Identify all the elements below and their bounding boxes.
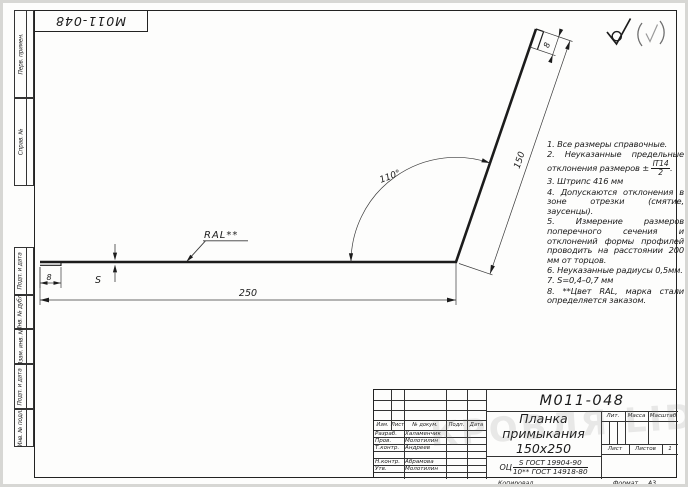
dim-8top-text: 8 [542, 41, 552, 49]
dim-s-text: S [95, 275, 101, 286]
dim-angle-text: 110° [378, 169, 402, 186]
sign-name: Молотилин [405, 465, 446, 472]
gost-drawing-sheet: Перв. примен. Справ. № Подп. и дата Инв.… [0, 0, 688, 487]
sign-role: Н.контр. [375, 458, 404, 465]
note-2: 2. Неуказанные предельные отклонения раз… [547, 150, 684, 177]
arrow [113, 253, 117, 261]
technical-notes: 1. Все размеры справочные. 2. Неуказанны… [547, 140, 684, 306]
ral-leader-line [189, 241, 249, 260]
listov-label: Листов [629, 444, 662, 454]
doc-number: М011-048 [486, 390, 678, 411]
arrow [40, 298, 49, 303]
listov-value: 1 [662, 444, 678, 454]
dim-8left-text: 8 [46, 273, 51, 282]
sign-role: Т.контр. [375, 444, 404, 451]
col-header-list: Лист [391, 420, 404, 430]
note-4: 4. Допускаются отклонения в зоне отрезки… [547, 188, 684, 217]
lit-header: Лит. [601, 411, 625, 421]
list-label: Лист [601, 444, 629, 454]
arrow [349, 253, 353, 261]
profile-outline [40, 29, 536, 262]
massa-header: Масса [625, 411, 648, 421]
note-8: 8. **Цвет RAL, марка стали определяется … [547, 287, 684, 306]
sign-name: Абрамова [405, 458, 446, 465]
arrow [481, 158, 490, 163]
sign-name: Молотилин [405, 437, 446, 444]
sign-role: Разраб. [375, 430, 404, 437]
kopiroval-label: Копировал [498, 480, 533, 487]
material-fraction: S ГОСТ 19904-9010** ГОСТ 14918-80 [513, 459, 588, 475]
sign-name: Андреев [405, 444, 446, 451]
sign-name: Халаменчик [405, 430, 446, 437]
roughness-other-icon [638, 21, 664, 46]
col-header-docnum: № докум. [404, 420, 446, 430]
arrow [113, 265, 117, 273]
format-label: Формат [613, 480, 638, 487]
roughness-main-icon [607, 19, 631, 45]
arrow [490, 265, 495, 274]
ral-label: RAL** [204, 230, 238, 241]
format-value: А3 [648, 480, 656, 487]
col-header-izm: Изм. [374, 420, 391, 430]
sign-role: Утв. [375, 465, 404, 472]
dim-150-text: 150 [513, 150, 528, 170]
note-5: 5. Измерение размеров поперечного сечени… [547, 217, 684, 266]
arrow [565, 41, 570, 50]
title-block: Изм. Лист № докум. Подп. Дата Разраб. Ха… [373, 389, 677, 478]
dim-250-text: 250 [239, 288, 257, 299]
tolerance-fraction: IT142 [651, 160, 670, 177]
arrow [447, 298, 456, 303]
sign-role: Пров. [375, 437, 404, 444]
arrow [548, 55, 553, 63]
material-spec: ОЦS ГОСТ 19904-9010** ГОСТ 14918-80 [486, 456, 601, 479]
arrow [54, 281, 62, 285]
angle-arc [351, 157, 490, 262]
part-name: Планка примыкания 150x250 [486, 411, 601, 456]
masshtab-header: Масштаб [648, 411, 678, 421]
col-header-data: Дата [467, 420, 486, 430]
col-header-podp: Подп. [446, 420, 467, 430]
arrow [559, 29, 564, 37]
